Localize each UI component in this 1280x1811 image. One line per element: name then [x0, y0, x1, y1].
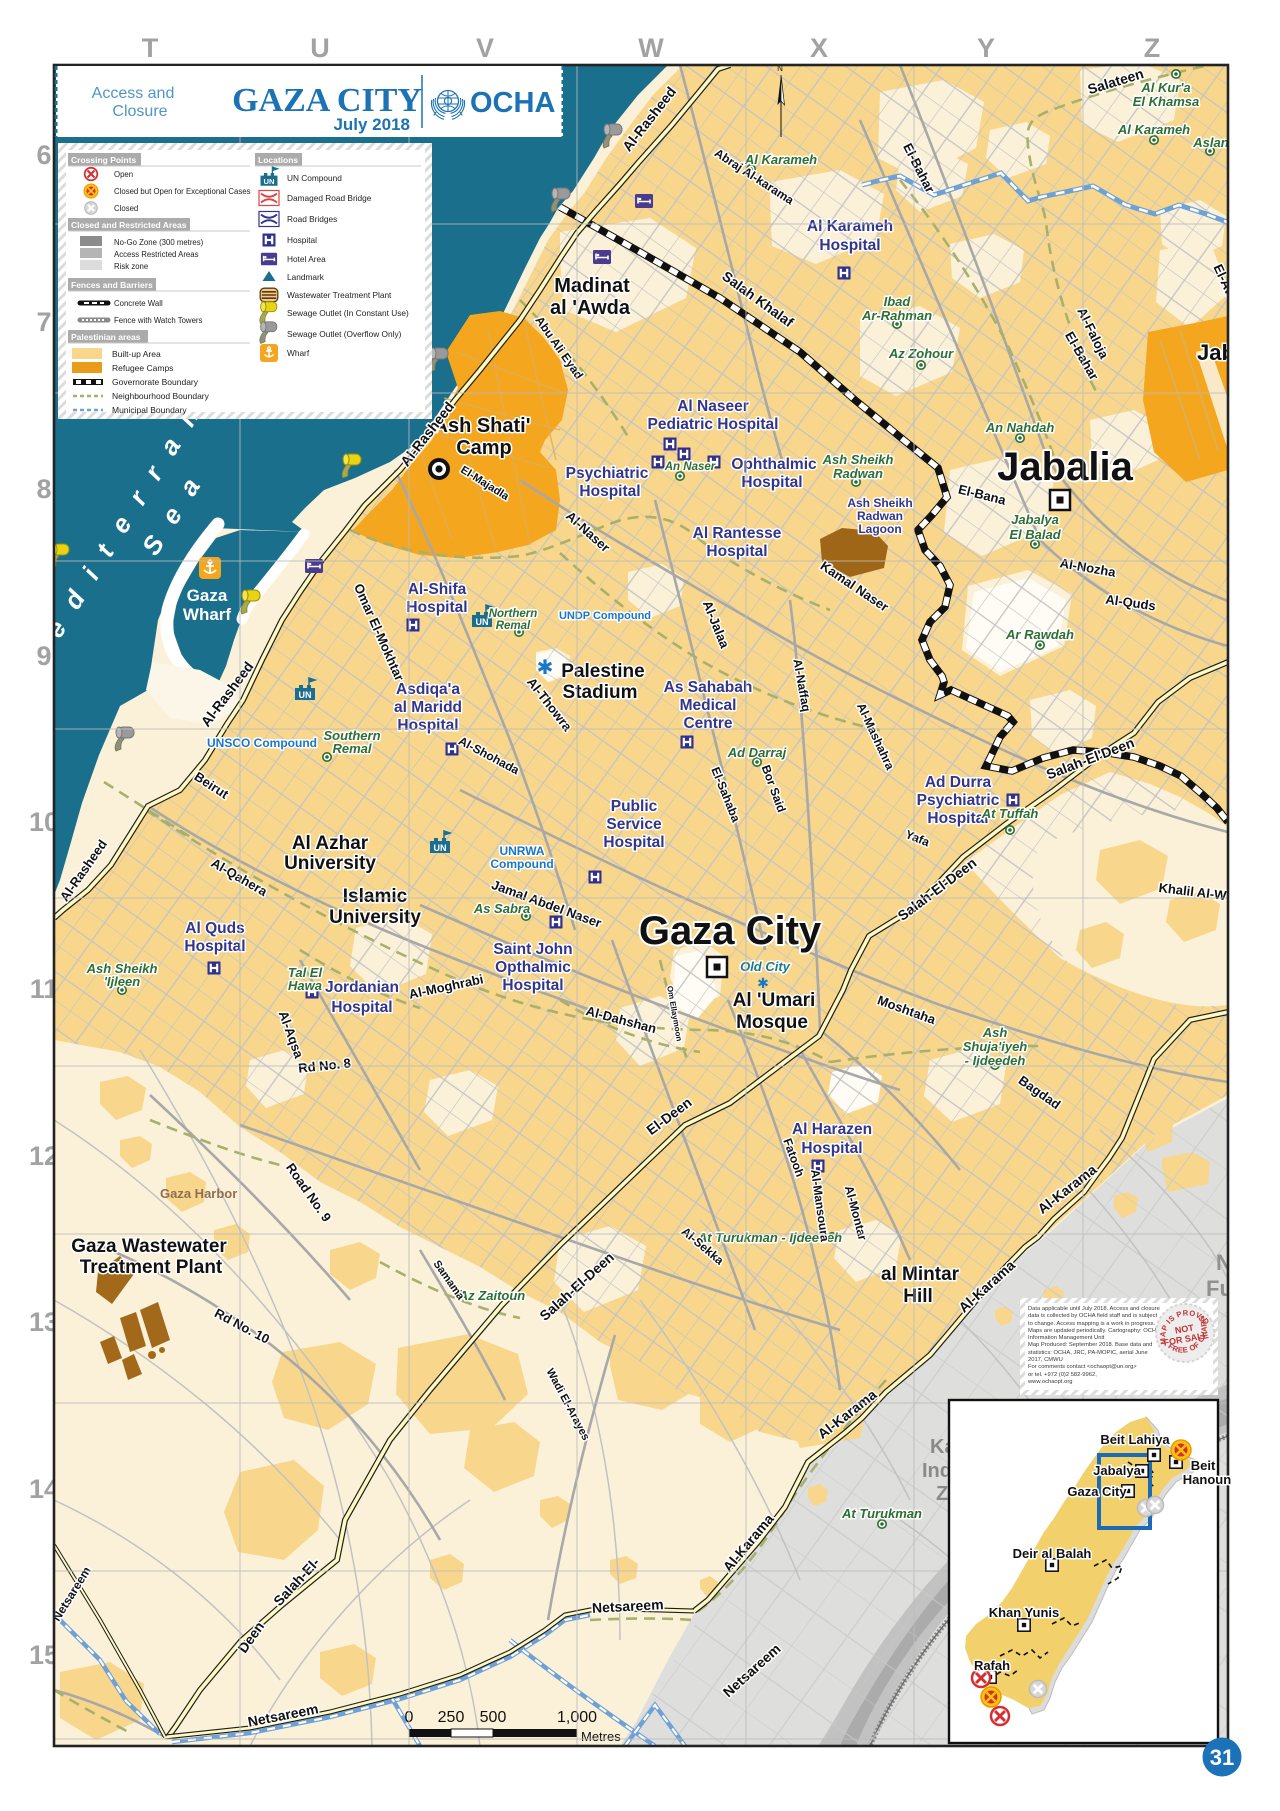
svg-text:Public: Public — [611, 798, 658, 815]
svg-text:Risk zone: Risk zone — [114, 262, 148, 271]
svg-text:Ophthalmic: Ophthalmic — [731, 456, 817, 473]
svg-text:Jabalia: Jabalia — [997, 445, 1133, 489]
svg-text:V: V — [476, 33, 494, 63]
svg-text:www.ochaopt.org: www.ochaopt.org — [1027, 1379, 1072, 1385]
svg-text:Maps are updated periodically.: Maps are updated periodically. Cartograp… — [1028, 1328, 1160, 1334]
svg-text:Al Naseer: Al Naseer — [677, 398, 749, 415]
svg-text:Ash: Ash — [982, 1025, 1008, 1040]
svg-text:Landmark: Landmark — [287, 272, 325, 282]
svg-text:Palestinian areas: Palestinian areas — [71, 332, 141, 342]
svg-text:Hospital: Hospital — [406, 599, 467, 616]
svg-text:Jabalya: Jabalya — [1093, 1463, 1141, 1478]
svg-text:Road Bridges: Road Bridges — [287, 214, 337, 224]
svg-text:Al Harazen: Al Harazen — [792, 1121, 872, 1138]
svg-text:Treatment Plant: Treatment Plant — [80, 1257, 223, 1278]
svg-text:Remal: Remal — [332, 741, 371, 756]
svg-text:An Nahdah: An Nahdah — [985, 420, 1055, 435]
svg-text:al 'Awda: al 'Awda — [550, 297, 631, 319]
svg-text:Map Produced: September 2018.: Map Produced: September 2018. Base data … — [1028, 1342, 1152, 1348]
svg-text:Remal: Remal — [496, 620, 531, 632]
svg-text:Fences and Barriers: Fences and Barriers — [71, 280, 153, 290]
svg-text:Hospital: Hospital — [819, 237, 880, 254]
svg-text:Khan Yunis: Khan Yunis — [989, 1605, 1060, 1620]
svg-text:Hospital: Hospital — [287, 235, 317, 245]
svg-text:Al Azhar: Al Azhar — [292, 833, 369, 854]
svg-text:Gaza Harbor: Gaza Harbor — [160, 1186, 237, 1201]
svg-text:Wharf: Wharf — [287, 348, 310, 358]
svg-text:Gaza Wastewater: Gaza Wastewater — [71, 1236, 227, 1257]
svg-text:✱: ✱ — [757, 975, 769, 991]
svg-text:Y: Y — [977, 33, 995, 63]
svg-text:Hospital: Hospital — [184, 938, 245, 955]
svg-text:Madinat: Madinat — [554, 275, 630, 297]
svg-text:Hospital: Hospital — [502, 977, 563, 994]
svg-text:Al Karameh: Al Karameh — [744, 152, 817, 167]
svg-text:T: T — [142, 33, 159, 63]
svg-text:to change. Access mapping is a: to change. Access mapping is a work in p… — [1028, 1321, 1156, 1327]
svg-text:For comments contact <ochaopt@: For comments contact <ochaopt@un.org> — [1028, 1364, 1137, 1370]
svg-text:data is collected by OCHA fiel: data is collected by OCHA field staff an… — [1028, 1313, 1157, 1319]
svg-text:Saint John: Saint John — [493, 941, 572, 958]
svg-text:Old City: Old City — [740, 959, 791, 974]
svg-text:Medical: Medical — [680, 697, 737, 714]
svg-text:Hospital: Hospital — [801, 1140, 862, 1157]
svg-text:Radwan: Radwan — [833, 466, 883, 481]
svg-text:Islamic: Islamic — [343, 886, 408, 907]
svg-text:Ash Sheikh: Ash Sheikh — [847, 496, 912, 510]
svg-text:Governorate Boundary: Governorate Boundary — [112, 377, 199, 387]
svg-text:or tel. +972 (0)2 582-9962,: or tel. +972 (0)2 582-9962, — [1028, 1372, 1097, 1378]
svg-text:Municipal Boundary: Municipal Boundary — [112, 405, 187, 415]
svg-text:Information Management Unit: Information Management Unit — [1028, 1335, 1105, 1341]
svg-text:Northern: Northern — [489, 608, 538, 620]
svg-text:Opthalmic: Opthalmic — [495, 959, 571, 976]
svg-text:Mosque: Mosque — [736, 1012, 808, 1033]
svg-text:Closed but Open for Exceptiona: Closed but Open for Exceptional Cases — [114, 187, 251, 196]
svg-text:Fence with Watch Towers: Fence with Watch Towers — [114, 316, 202, 325]
svg-text:An Naser: An Naser — [664, 461, 716, 473]
svg-text:At Turukman: At Turukman — [841, 1506, 922, 1521]
svg-text:Closed: Closed — [114, 204, 138, 213]
svg-text:7: 7 — [36, 307, 51, 337]
svg-text:2017, CMWU: 2017, CMWU — [1028, 1357, 1063, 1363]
svg-text:Z: Z — [1144, 33, 1161, 63]
svg-text:Palestine: Palestine — [561, 661, 644, 682]
svg-text:Al Kur'a: Al Kur'a — [1140, 80, 1190, 95]
svg-text:Deir al Balah: Deir al Balah — [1013, 1546, 1092, 1561]
svg-text:Jabalya: Jabalya — [1011, 512, 1059, 527]
svg-text:Radwan: Radwan — [857, 509, 903, 523]
svg-text:Refugee Camps: Refugee Camps — [112, 363, 173, 373]
svg-text:Data applicable until July 201: Data applicable until July 2018. Access … — [1028, 1306, 1160, 1312]
svg-text:Damaged Road Bridge: Damaged Road Bridge — [287, 193, 372, 203]
svg-text:Crossing Points: Crossing Points — [71, 155, 136, 165]
svg-text:✱: ✱ — [537, 657, 554, 679]
svg-text:250: 250 — [438, 1709, 465, 1726]
svg-text:UNSCO Compound: UNSCO Compound — [207, 736, 317, 750]
svg-text:Gaza: Gaza — [187, 586, 228, 605]
svg-text:Gaza City: Gaza City — [639, 909, 822, 953]
svg-text:Al Karameh: Al Karameh — [807, 218, 893, 235]
svg-text:Lagoon: Lagoon — [858, 522, 901, 536]
svg-text:Asdiqa'a: Asdiqa'a — [396, 681, 460, 698]
svg-text:El Khamsa: El Khamsa — [1133, 94, 1199, 109]
svg-text:At Tuffah: At Tuffah — [981, 806, 1039, 821]
svg-text:Hospital: Hospital — [331, 999, 392, 1016]
svg-text:Az Zaitoun: Az Zaitoun — [458, 1288, 525, 1303]
svg-text:Psychiatric: Psychiatric — [566, 465, 649, 482]
svg-text:OCHA: OCHA — [470, 87, 555, 119]
svg-text:Open: Open — [114, 170, 133, 179]
svg-text:Sewage Outlet (Overflow Only): Sewage Outlet (Overflow Only) — [287, 329, 402, 339]
svg-text:Az Zohour: Az Zohour — [888, 346, 954, 361]
svg-text:Beit: Beit — [1191, 1458, 1216, 1473]
svg-text:Concrete Wall: Concrete Wall — [114, 299, 163, 308]
svg-text:Hospital: Hospital — [927, 810, 988, 827]
svg-text:Compound: Compound — [490, 857, 553, 871]
svg-text:Locations: Locations — [258, 155, 298, 165]
svg-text:July 2018: July 2018 — [333, 115, 410, 134]
svg-text:Stadium: Stadium — [563, 682, 638, 703]
svg-text:Ar Rawdah: Ar Rawdah — [1005, 627, 1074, 642]
svg-text:Al Karameh: Al Karameh — [1117, 122, 1190, 137]
svg-text:UN Compound: UN Compound — [287, 173, 342, 183]
svg-text:500: 500 — [480, 1709, 507, 1726]
svg-text:Closure: Closure — [112, 103, 167, 120]
svg-text:Aslan: Aslan — [1192, 135, 1228, 150]
svg-text:GAZA CITY: GAZA CITY — [232, 82, 422, 119]
svg-text:Closed and Restricted Areas: Closed and Restricted Areas — [71, 220, 187, 230]
svg-text:UNDP Compound: UNDP Compound — [559, 610, 651, 622]
svg-text:Al Rantesse: Al Rantesse — [693, 525, 782, 542]
svg-text:Ad Durra: Ad Durra — [925, 774, 992, 791]
svg-text:As Sabra: As Sabra — [473, 901, 530, 916]
svg-text:Ash Sheikh: Ash Sheikh — [822, 452, 894, 467]
svg-text:al Mintar: al Mintar — [881, 1264, 960, 1285]
svg-text:Built-up Area: Built-up Area — [112, 349, 161, 359]
svg-text:Pediatric Hospital: Pediatric Hospital — [648, 416, 779, 433]
svg-text:UNRWA: UNRWA — [499, 844, 544, 858]
svg-text:Hospital: Hospital — [397, 717, 458, 734]
svg-text:statistics: OCHA, JRC, PA-MOPI: statistics: OCHA, JRC, PA-MOPIC, aerial … — [1028, 1350, 1148, 1356]
svg-text:Hotel Area: Hotel Area — [287, 254, 326, 264]
svg-text:Jordanian: Jordanian — [325, 979, 399, 996]
svg-text:Ibad: Ibad — [884, 294, 912, 309]
svg-text:Metres: Metres — [581, 1729, 621, 1744]
svg-text:Hill: Hill — [903, 1286, 933, 1307]
svg-text:Rafah: Rafah — [974, 1658, 1010, 1673]
svg-text:Al Quds: Al Quds — [185, 920, 244, 937]
svg-text:Wharf: Wharf — [183, 605, 232, 624]
svg-text:As Sahabah: As Sahabah — [664, 679, 753, 696]
svg-text:Al 'Umari: Al 'Umari — [733, 990, 816, 1011]
svg-text:al Maridd: al Maridd — [394, 699, 462, 716]
svg-text:Beit Lahiya: Beit Lahiya — [1100, 1432, 1170, 1447]
svg-text:8: 8 — [36, 474, 51, 504]
svg-text:W: W — [638, 33, 664, 63]
svg-text:Gaza City: Gaza City — [1067, 1484, 1127, 1499]
svg-text:Hospital: Hospital — [579, 483, 640, 500]
svg-text:U: U — [310, 33, 330, 63]
svg-text:31: 31 — [1210, 1745, 1234, 1770]
svg-text:Sewage Outlet (In Constant Use: Sewage Outlet (In Constant Use) — [287, 308, 409, 318]
svg-text:El Balad: El Balad — [1009, 527, 1061, 542]
svg-text:No-Go Zone (300 metres): No-Go Zone (300 metres) — [114, 238, 204, 247]
svg-text:Ad Darraj: Ad Darraj — [727, 745, 787, 760]
svg-text:Camp: Camp — [456, 437, 512, 459]
svg-text:9: 9 — [36, 641, 51, 671]
svg-text:Service: Service — [606, 816, 662, 833]
svg-text:'Ijleen: 'Ijleen — [104, 974, 140, 989]
svg-text:Hospital: Hospital — [706, 543, 767, 560]
svg-text:Hospital: Hospital — [741, 474, 802, 491]
svg-text:Access Restricted Areas: Access Restricted Areas — [114, 250, 199, 259]
svg-text:X: X — [810, 33, 828, 63]
svg-text:Wastewater Treatment Plant: Wastewater Treatment Plant — [287, 290, 392, 300]
svg-text:University: University — [284, 853, 376, 874]
svg-text:Z: Z — [936, 1483, 948, 1505]
svg-text:Hospital: Hospital — [603, 834, 664, 851]
svg-text:University: University — [329, 907, 421, 928]
svg-text:Ar-Rahman: Ar-Rahman — [861, 308, 932, 323]
svg-text:Access and: Access and — [92, 85, 175, 102]
svg-text:6: 6 — [36, 140, 51, 170]
svg-text:Neighbourhood Boundary: Neighbourhood Boundary — [112, 391, 210, 401]
svg-text:Hanoun: Hanoun — [1183, 1472, 1231, 1487]
svg-text:Hawa: Hawa — [288, 978, 322, 993]
svg-text:Shuja'iyeh: Shuja'iyeh — [963, 1039, 1028, 1054]
svg-text:Al-Shifa: Al-Shifa — [408, 581, 467, 598]
